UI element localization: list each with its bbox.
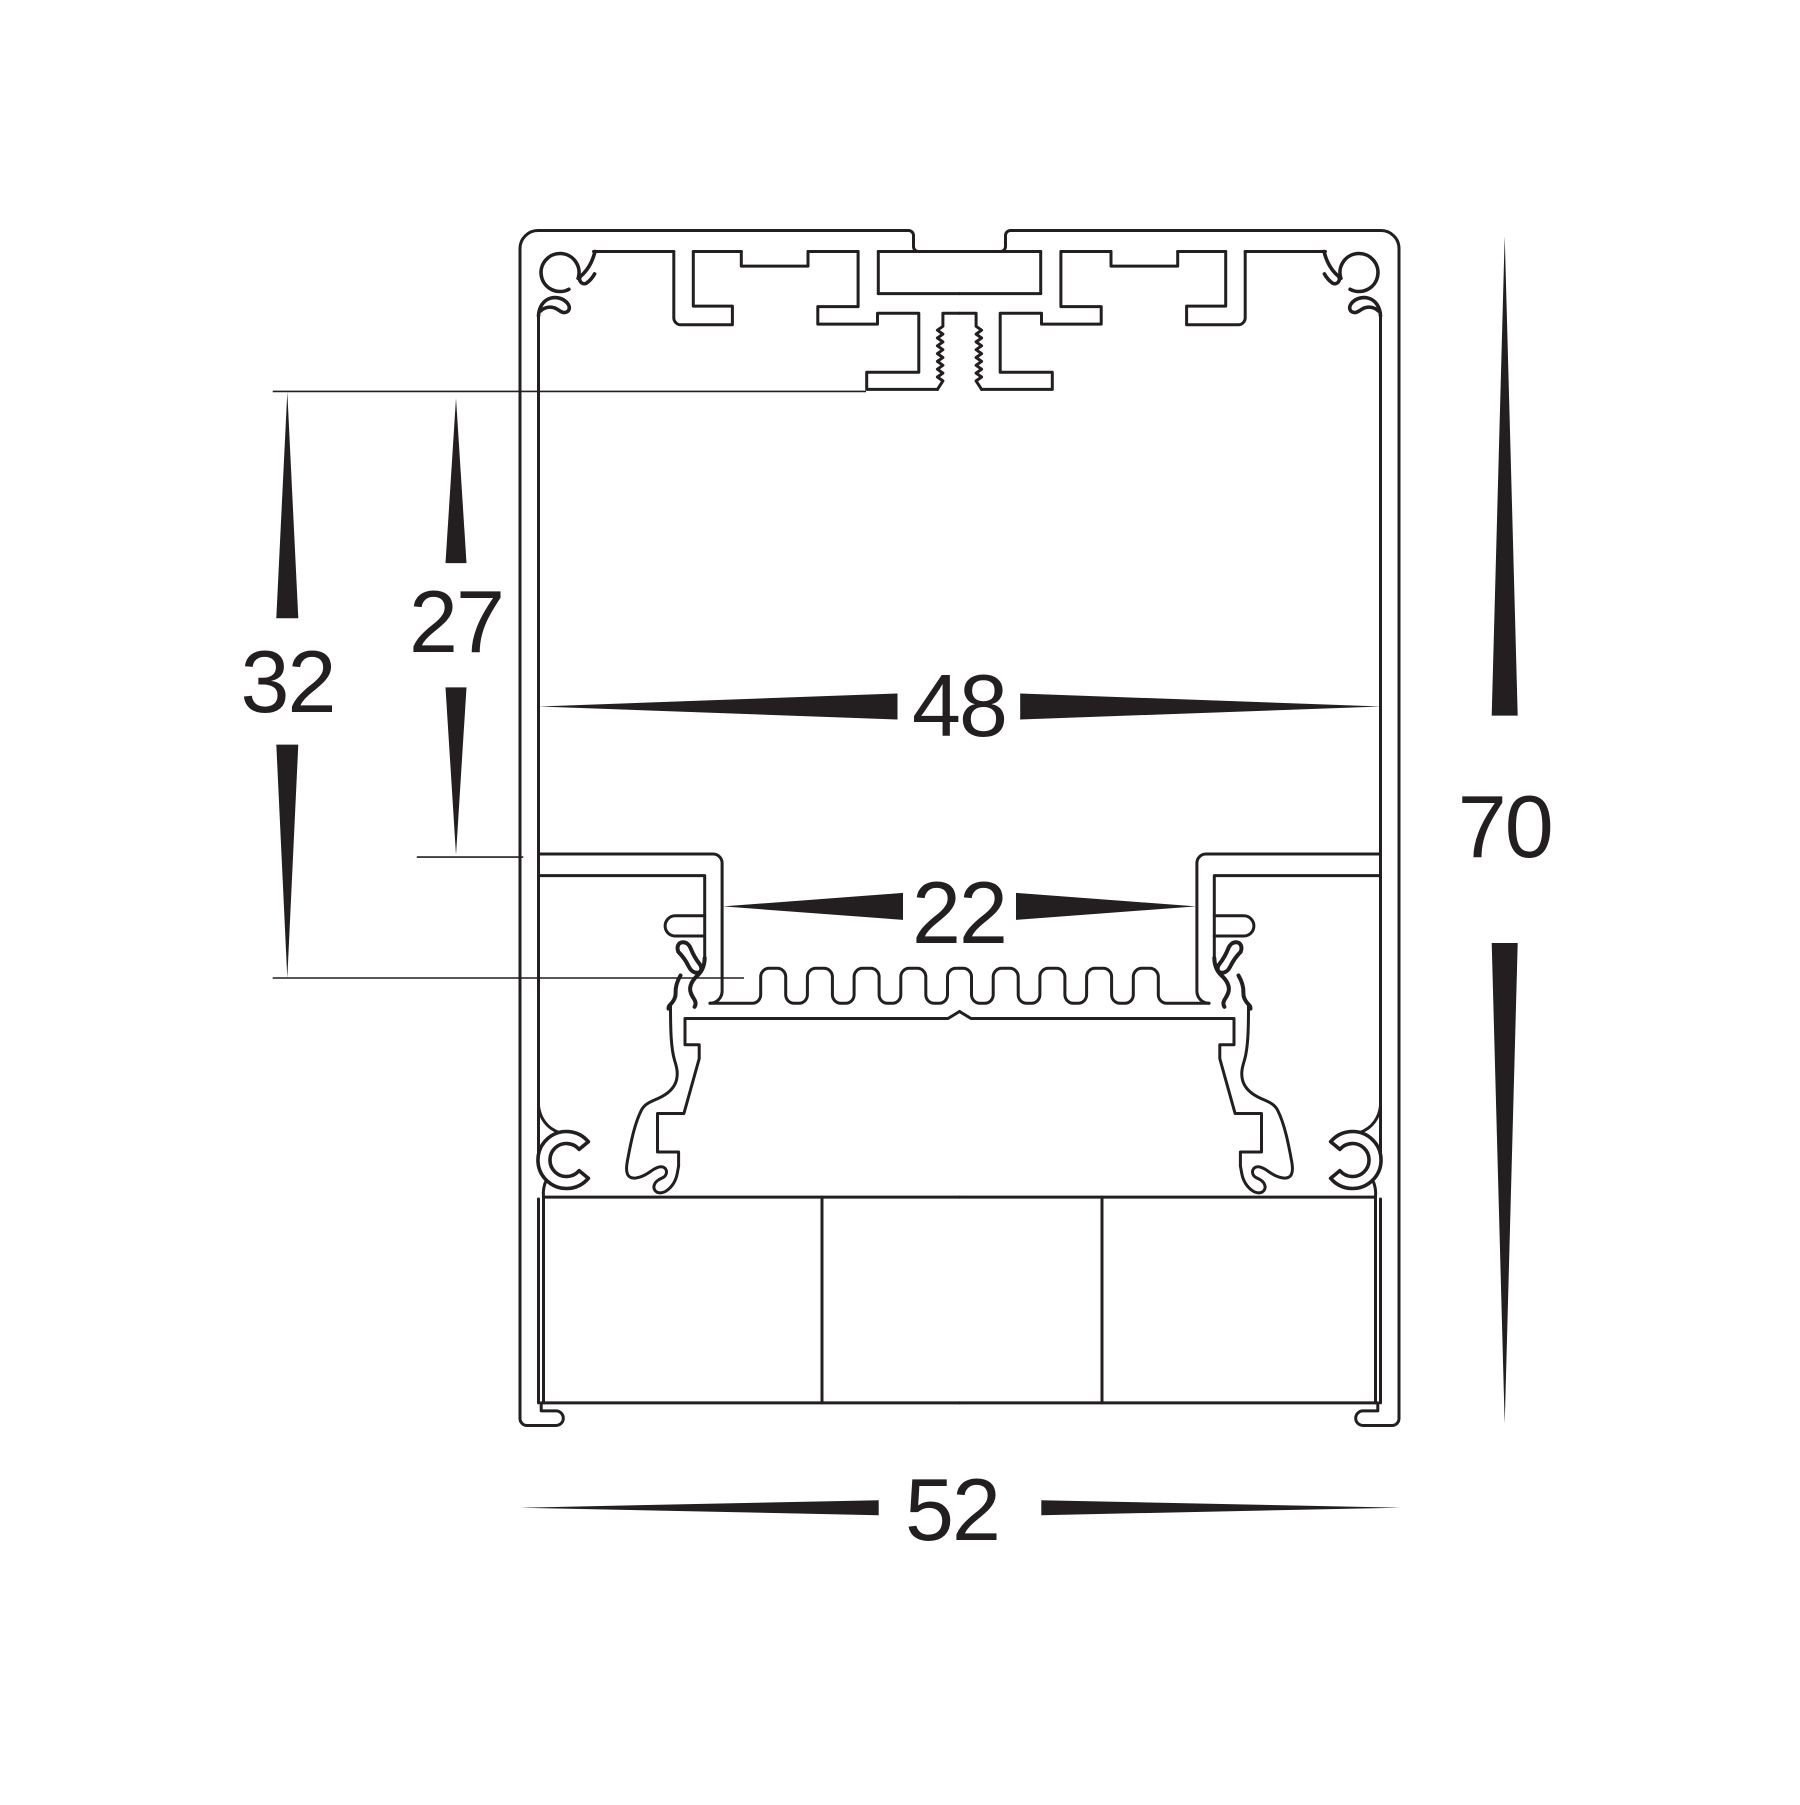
svg-text:32: 32 xyxy=(241,632,335,731)
svg-text:70: 70 xyxy=(1458,777,1552,876)
svg-text:48: 48 xyxy=(912,656,1006,755)
svg-text:52: 52 xyxy=(905,1460,999,1559)
svg-text:22: 22 xyxy=(912,863,1006,962)
svg-text:27: 27 xyxy=(409,572,503,671)
